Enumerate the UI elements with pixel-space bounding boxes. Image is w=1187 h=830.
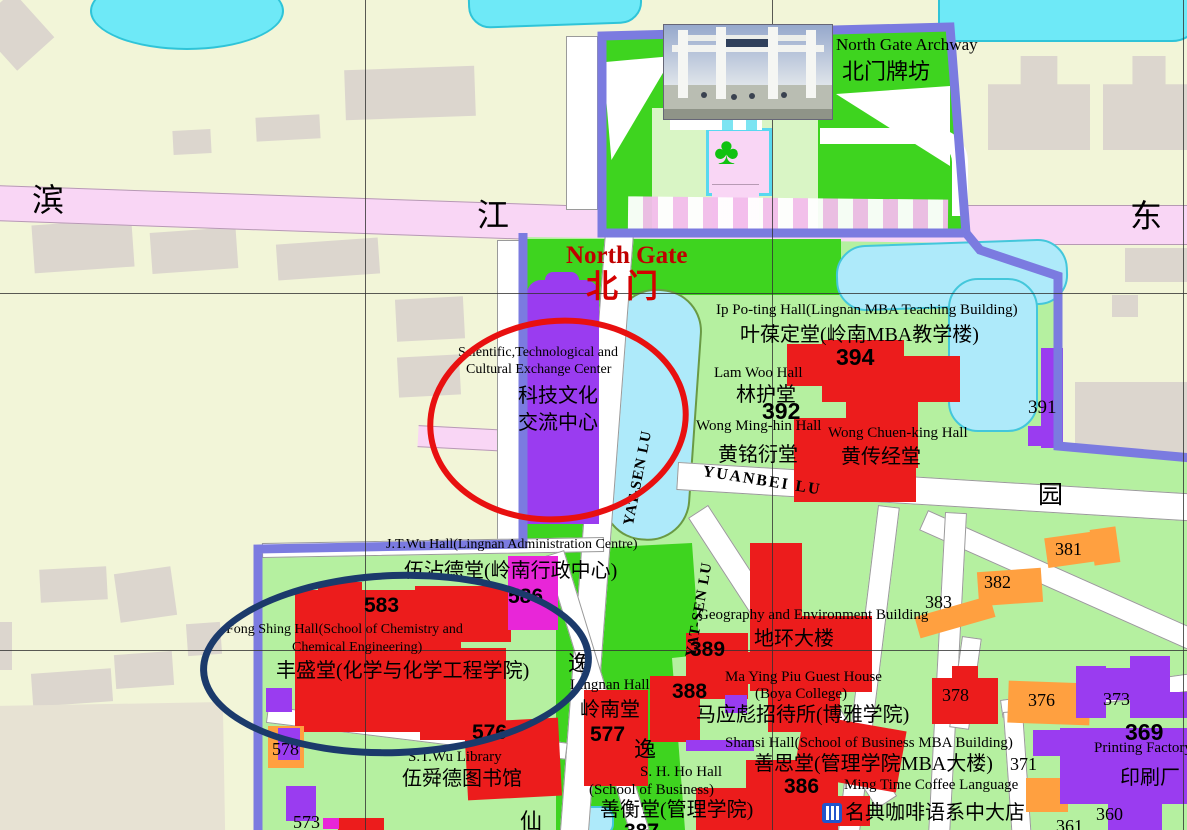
grid-line-v <box>1183 0 1184 830</box>
campus-map: ♣ <box>0 0 1187 830</box>
restaurant-icon <box>822 803 842 823</box>
grid-line-h <box>0 650 1187 651</box>
photo-caption-zh: 北门牌坊 <box>842 60 930 83</box>
grid-line-h <box>0 293 1187 294</box>
north-gate-photo <box>663 24 833 120</box>
photo-caption-en: North Gate Archway <box>836 36 978 54</box>
grid-line-v <box>772 0 773 830</box>
